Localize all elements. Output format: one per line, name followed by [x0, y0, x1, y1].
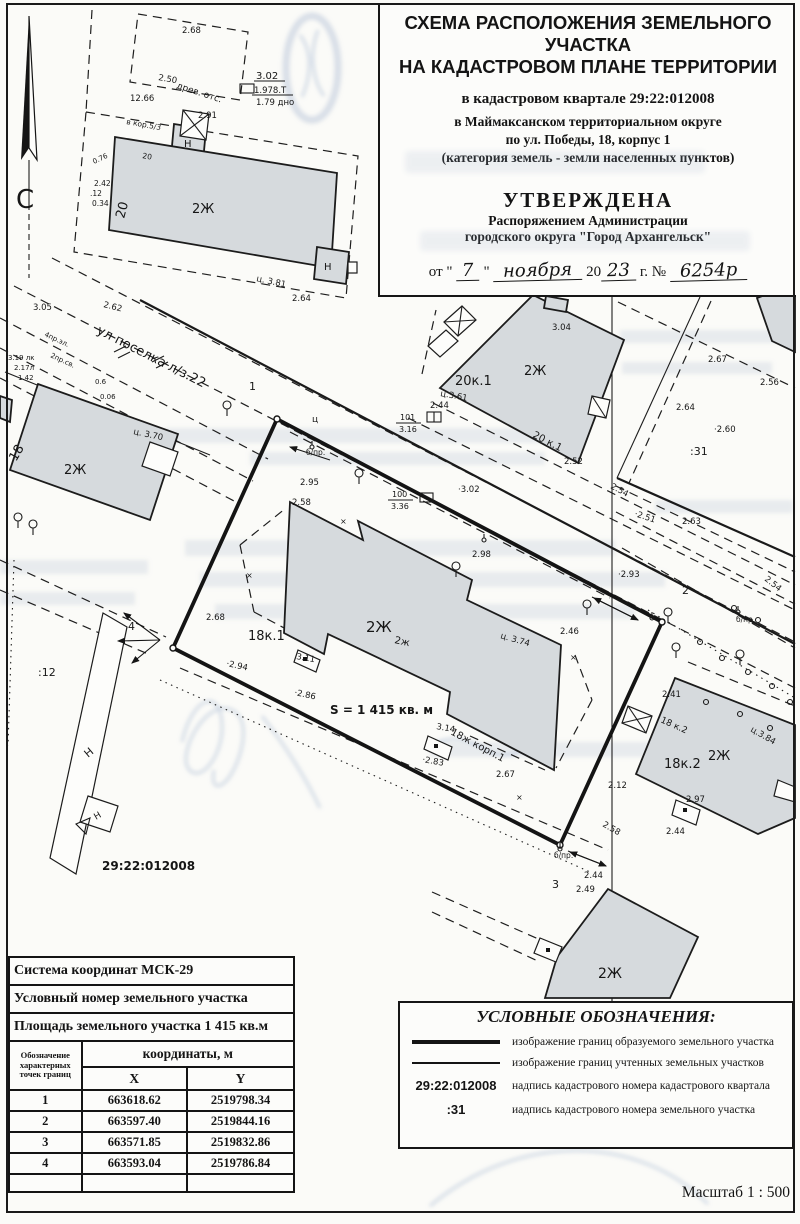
- map-label: ул поселка л/з.22: [94, 323, 208, 391]
- handwritten-day: 7: [456, 262, 480, 282]
- handwritten-year: 23: [601, 262, 636, 282]
- map-label: :12: [38, 666, 56, 679]
- title-line1: СХЕМА РАСПОЛОЖЕНИЯ ЗЕМЕЛЬНОГО УЧАСТКА: [380, 12, 796, 56]
- map-label: 2.49: [576, 885, 595, 895]
- approval-date-line: от " 7 " ноября 2023 г. № 6254р: [380, 262, 796, 281]
- map-label: 1.978.Т: [254, 86, 287, 96]
- map-label: 2пр.св.: [49, 352, 76, 370]
- date-year-prefix: 20: [586, 264, 601, 280]
- map-label: ×: [246, 571, 253, 580]
- ghost-bleed: [420, 231, 750, 251]
- table-row: 1 663618.62 2519798.34: [9, 1090, 294, 1111]
- map-label: 3.36: [391, 502, 409, 511]
- map-label: 1: [249, 380, 256, 393]
- map-label: 2.67: [708, 355, 727, 365]
- map-label: 3.14: [435, 722, 455, 735]
- map-label: 2.98: [472, 550, 491, 560]
- map-label: 3: [552, 878, 559, 891]
- legend-box: УСЛОВНЫЕ ОБОЗНАЧЕНИЯ: изображение границ…: [398, 1001, 794, 1149]
- map-label: 4пр.эл.: [43, 331, 70, 349]
- legend-item-label: иадпись кадастрового номера земельного у…: [512, 1104, 755, 1116]
- y-column-header: Y: [187, 1067, 294, 1090]
- thick-line-symbol: [400, 1040, 512, 1044]
- legend-item-label: изображение границ учтенных земельных уч…: [512, 1057, 764, 1069]
- date-suffix: г. №: [640, 264, 666, 280]
- map-label: 2Ж: [192, 202, 214, 217]
- map-label: 2Ж: [598, 966, 622, 982]
- point-x: 663571.85: [82, 1132, 188, 1153]
- map-label: 3.04: [552, 323, 571, 333]
- address-line: по ул. Победы, 18, корпус 1: [380, 132, 796, 148]
- point-y: 2519786.84: [187, 1153, 294, 1174]
- map-label: б/пр.: [554, 851, 573, 860]
- map-label: 100: [392, 490, 407, 499]
- map-label: 2.97: [686, 795, 705, 805]
- map-label: S = 1 415 кв. м: [330, 703, 433, 717]
- map-label: С: [16, 185, 34, 215]
- approved-title: УТВЕРЖДЕНА: [380, 188, 796, 213]
- map-label: 0.6: [95, 378, 107, 386]
- map-label: ×: [516, 793, 523, 802]
- point-number: 3: [9, 1132, 82, 1153]
- map-label: 2.44: [666, 827, 685, 837]
- map-label: ц: [312, 415, 318, 425]
- document-title: СХЕМА РАСПОЛОЖЕНИЯ ЗЕМЕЛЬНОГО УЧАСТКА НА…: [380, 12, 796, 79]
- map-label: ц. 3.81: [255, 274, 287, 290]
- map-label: 2.17л: [14, 364, 34, 372]
- map-label: 0.34: [92, 199, 109, 208]
- map-label: 2.44: [430, 401, 449, 411]
- map-label: 2.68: [182, 26, 201, 36]
- map-label: 20: [142, 151, 153, 162]
- map-label: 1.79 дно: [256, 98, 294, 108]
- map-label: 101: [400, 413, 415, 422]
- map-label: ·2.86: [293, 688, 316, 702]
- handwritten-number: 6254р: [670, 261, 748, 282]
- map-label: в кор.5/3: [126, 117, 162, 132]
- map-label: 2.41: [662, 690, 681, 700]
- map-label: ·3.02: [458, 485, 480, 495]
- legend-item-label: надпись кадастрового номера кадастрового…: [512, 1080, 770, 1092]
- map-label: 0.76: [91, 152, 109, 166]
- map-label: б/пр.: [736, 615, 755, 624]
- point-y: 2519832.86: [187, 1132, 294, 1153]
- map-label: 18к.1: [248, 629, 285, 644]
- map-label: ×: [570, 653, 577, 662]
- point-x: 663597.40: [82, 1111, 188, 1132]
- handwritten-month: ноября: [493, 261, 583, 282]
- map-label: :31: [690, 445, 708, 458]
- coordinates-table: Система координат МСК-29 Условный номер …: [8, 956, 295, 1193]
- conditional-number-row: Условный номер земельного участка: [9, 985, 294, 1013]
- x-column-header: X: [82, 1067, 188, 1090]
- map-label: 2.67: [496, 770, 515, 780]
- table-row: 2 663597.40 2519844.16: [9, 1111, 294, 1132]
- map-label: 2.91: [198, 111, 217, 121]
- map-label: 1.42: [18, 374, 34, 382]
- cadastral-scheme-page: 2.683.021.978.Т1.79 дно2.50древ. отс.12.…: [0, 0, 800, 1224]
- map-label: 2.52: [564, 457, 583, 467]
- map-label: 20к.1: [455, 374, 492, 389]
- point-x: 663618.62: [82, 1090, 188, 1111]
- map-label: 2Ж: [708, 749, 730, 764]
- map-label: Н: [324, 262, 332, 273]
- map-label: 4: [128, 620, 135, 633]
- map-label: 2.95: [300, 478, 319, 488]
- legend-title: УСЛОВНЫЕ ОБОЗНАЧЕНИЯ:: [400, 1007, 792, 1027]
- map-label: ·2.94: [225, 659, 248, 673]
- map-label: 2.58: [601, 820, 622, 838]
- map-label: 2.58: [292, 498, 311, 508]
- date-prefix: от ": [429, 264, 453, 280]
- map-label: 2.46: [560, 627, 579, 637]
- date-quote: ": [483, 264, 489, 280]
- map-label: 3.05: [33, 303, 52, 313]
- map-label: Н: [184, 139, 192, 150]
- parcel-number-symbol: :31: [400, 1102, 512, 1117]
- map-label: 18к.2: [664, 757, 701, 772]
- coords-column-header: координаты, м: [82, 1041, 294, 1067]
- legend-item: :31 иадпись кадастрового номера земельно…: [400, 1102, 792, 1117]
- table-row: 4 663593.04 2519786.84: [9, 1153, 294, 1174]
- approved-by-line1: Распоряжением Администрации: [380, 213, 796, 230]
- map-label: 2.50: [157, 73, 177, 86]
- points-column-header: Обозначение характерных точек границ: [9, 1041, 82, 1090]
- thin-line-symbol: [400, 1062, 512, 1064]
- map-label: 2.44: [584, 871, 603, 881]
- point-x: 663593.04: [82, 1153, 188, 1174]
- map-label: 2Ж: [64, 463, 86, 478]
- map-label: ·2.60: [714, 425, 736, 435]
- area-row: Площадь земельного участка 1 415 кв.м: [9, 1013, 294, 1041]
- legend-item: 29:22:012008 надпись кадастрового номера…: [400, 1078, 792, 1093]
- north-arrow: [21, 16, 37, 278]
- legend-item-label: изображение границ образуемого земельног…: [512, 1036, 774, 1048]
- point-y: 2519844.16: [187, 1111, 294, 1132]
- point-number: 4: [9, 1153, 82, 1174]
- map-label: 2: [682, 584, 689, 597]
- map-label: 2Ж: [524, 364, 546, 379]
- cadastral-quarter-line: в кадастровом квартале 29:22:012008: [380, 91, 796, 108]
- ghost-bleed: [405, 151, 705, 173]
- map-label: .12: [90, 189, 102, 198]
- quarter-number-symbol: 29:22:012008: [400, 1078, 512, 1093]
- point-number: 1: [9, 1090, 82, 1111]
- map-label: 2.64: [676, 403, 695, 413]
- map-label: 2.62: [102, 300, 123, 314]
- map-label: 3.16: [399, 425, 417, 434]
- map-label: 2Ж: [366, 618, 392, 636]
- point-y: 2519798.34: [187, 1090, 294, 1111]
- point-number: 2: [9, 1111, 82, 1132]
- map-label: ·2.93: [618, 570, 640, 580]
- map-label: 2.54: [762, 574, 783, 594]
- map-label: 29:22:012008: [102, 859, 195, 873]
- table-row: 3 663571.85 2519832.86: [9, 1132, 294, 1153]
- district-line: в Маймаксанском территориальном округе: [380, 114, 796, 130]
- map-label: 2.64: [292, 294, 311, 304]
- map-label: 0.06: [100, 393, 116, 401]
- map-label: 2.12: [608, 781, 627, 791]
- legend-item: изображение границ образуемого земельног…: [400, 1036, 792, 1048]
- header-box: СХЕМА РАСПОЛОЖЕНИЯ ЗЕМЕЛЬНОГО УЧАСТКА НА…: [378, 3, 796, 297]
- coord-system-row: Система координат МСК-29: [9, 957, 294, 985]
- legend-item: изображение границ учтенных земельных уч…: [400, 1057, 792, 1069]
- map-label: 2.68: [206, 613, 225, 623]
- map-label: б/пр.: [306, 448, 325, 457]
- map-label: 2.42: [94, 179, 111, 188]
- scale-label: Масштаб 1 : 500: [640, 1184, 790, 1202]
- map-label: древ. отс.: [175, 81, 223, 105]
- map-label: 3.19 лк: [8, 354, 35, 362]
- map-label: 12.66: [130, 94, 154, 104]
- map-label: 3.02: [256, 71, 278, 82]
- map-label: ×: [340, 517, 347, 526]
- map-label: 2.56: [760, 378, 779, 388]
- map-label: 2.63: [682, 517, 701, 527]
- title-line2: НА КАДАСТРОВОМ ПЛАНЕ ТЕРРИТОРИИ: [380, 56, 796, 78]
